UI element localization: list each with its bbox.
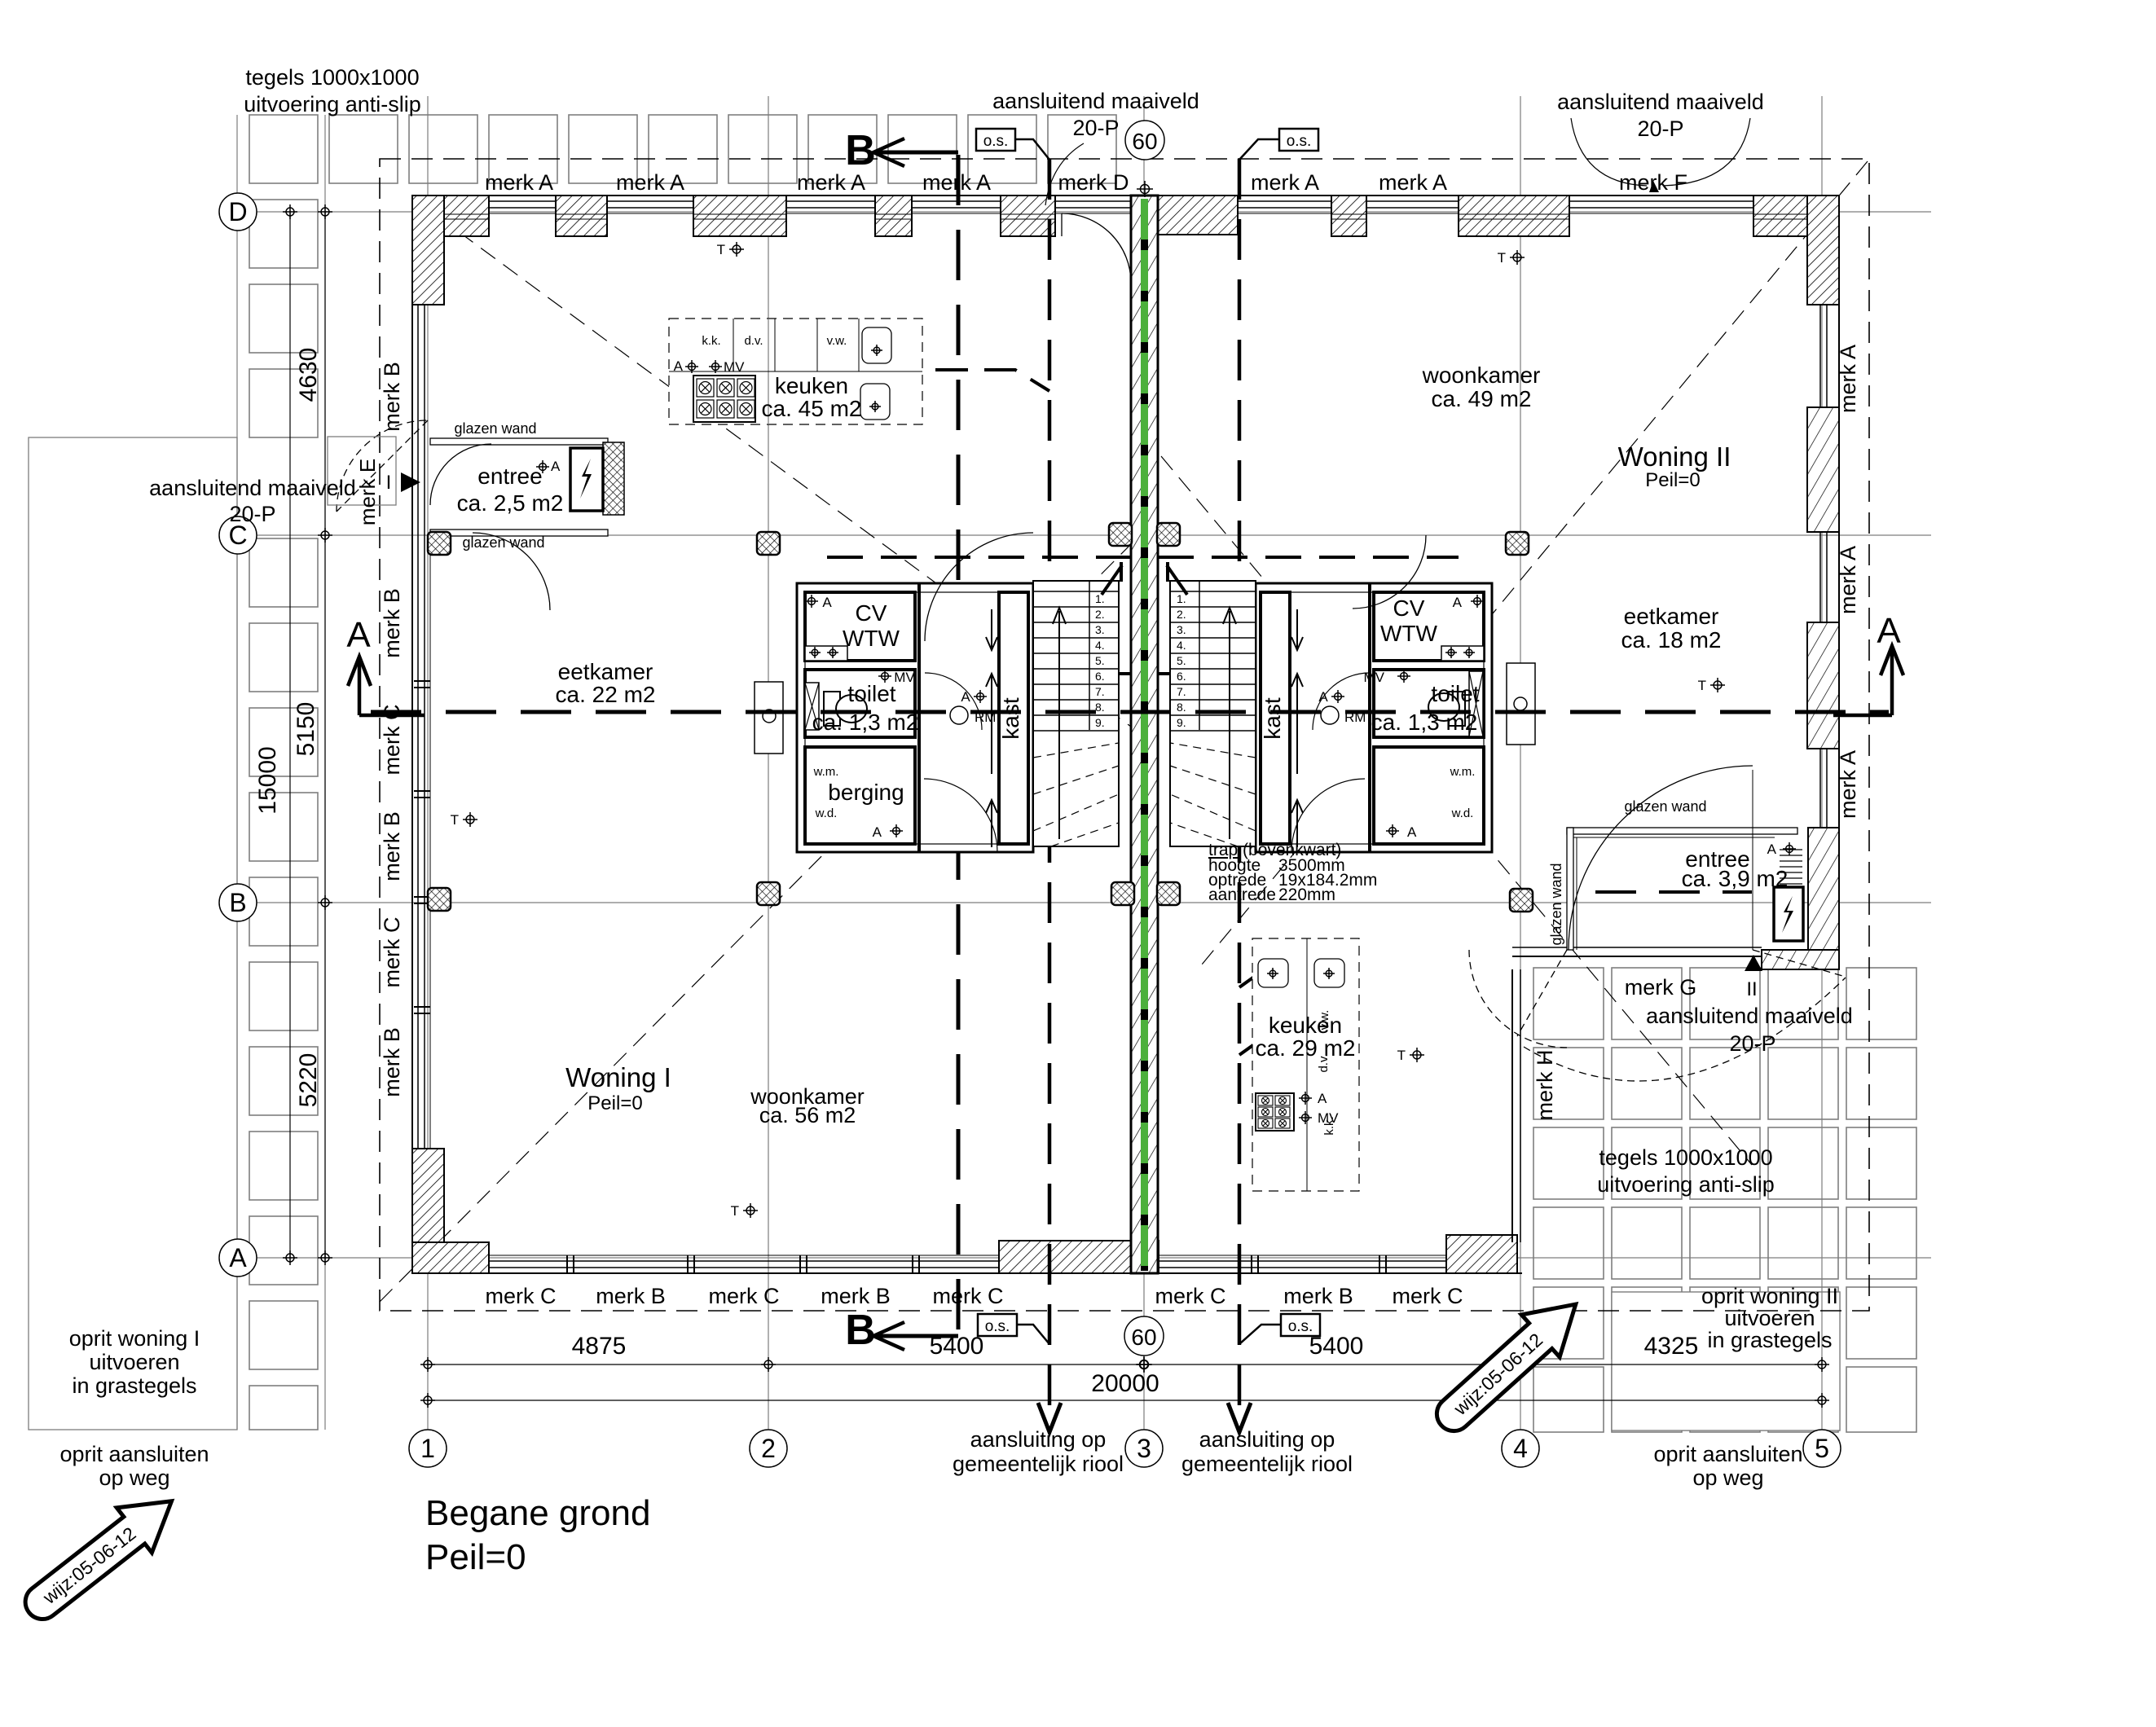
svg-text:k.k.: k.k. (702, 334, 720, 348)
svg-text:uitvoering anti-slip: uitvoering anti-slip (1597, 1172, 1775, 1197)
svg-text:merk B: merk B (380, 588, 404, 658)
svg-text:merk B: merk B (596, 1284, 666, 1308)
svg-text:glazen wand: glazen wand (454, 420, 536, 437)
svg-text:15000: 15000 (254, 746, 281, 814)
svg-text:aansluiting op: aansluiting op (1199, 1427, 1335, 1452)
svg-text:A: A (873, 824, 882, 840)
svg-text:merk C: merk C (380, 917, 404, 988)
svg-text:A: A (1877, 611, 1901, 651)
svg-text:4: 4 (1513, 1434, 1528, 1463)
svg-text:v.w.: v.w. (827, 334, 847, 348)
svg-text:A: A (1767, 842, 1777, 857)
svg-text:oprit aansluiten: oprit aansluiten (59, 1442, 209, 1466)
svg-text:4630: 4630 (295, 348, 322, 402)
svg-text:7.: 7. (1095, 685, 1105, 698)
svg-text:2.: 2. (1177, 608, 1186, 621)
svg-text:Peil=0: Peil=0 (1645, 469, 1700, 491)
svg-text:w.d.: w.d. (815, 806, 838, 820)
svg-text:MV: MV (894, 670, 915, 685)
svg-text:A: A (1318, 1091, 1327, 1106)
svg-text:T: T (1498, 250, 1506, 266)
svg-text:5220: 5220 (295, 1053, 322, 1108)
svg-text:gemeentelijk riool: gemeentelijk riool (1181, 1452, 1353, 1476)
svg-text:op weg: op weg (99, 1466, 169, 1490)
svg-text:MV: MV (1364, 670, 1385, 685)
svg-text:20-P: 20-P (1637, 116, 1683, 141)
svg-text:T: T (717, 242, 725, 257)
svg-text:220mm: 220mm (1278, 885, 1335, 904)
svg-text:1: 1 (420, 1434, 435, 1463)
svg-text:merk A: merk A (1836, 345, 1860, 413)
svg-text:merk B: merk B (1283, 1284, 1353, 1308)
svg-text:A: A (674, 358, 684, 374)
svg-text:B: B (845, 127, 876, 174)
svg-text:A: A (551, 459, 561, 474)
svg-text:merk B: merk B (380, 362, 404, 432)
svg-text:3.: 3. (1177, 623, 1186, 636)
svg-text:7.: 7. (1177, 685, 1186, 698)
svg-text:aansluitend maaiveld: aansluitend maaiveld (149, 476, 356, 500)
svg-text:A: A (229, 1243, 247, 1272)
svg-text:20-P: 20-P (1729, 1031, 1775, 1056)
svg-text:5150: 5150 (293, 702, 319, 757)
svg-text:merk B: merk B (821, 1284, 891, 1308)
svg-text:CV: CV (1393, 595, 1425, 621)
svg-text:d.v.: d.v. (744, 334, 763, 348)
svg-text:merk A: merk A (1379, 170, 1447, 195)
svg-text:op weg: op weg (1692, 1466, 1763, 1490)
svg-text:MV: MV (724, 359, 745, 375)
svg-text:merk H: merk H (1533, 1050, 1557, 1121)
svg-text:aansluitend maaiveld: aansluitend maaiveld (1646, 1004, 1853, 1028)
svg-text:keuken: keuken (1269, 1013, 1342, 1038)
svg-text:merk A: merk A (797, 170, 865, 195)
svg-text:4875: 4875 (572, 1333, 627, 1360)
svg-text:glazen wand: glazen wand (1548, 863, 1564, 945)
svg-text:ca. 45 m2: ca. 45 m2 (762, 396, 862, 421)
svg-text:ca. 29 m2: ca. 29 m2 (1256, 1035, 1356, 1061)
svg-text:A: A (1453, 595, 1463, 610)
svg-text:A: A (346, 615, 371, 655)
svg-text:8.: 8. (1095, 701, 1105, 714)
svg-text:aantrede: aantrede (1208, 885, 1276, 904)
svg-text:5400: 5400 (930, 1333, 984, 1360)
svg-text:merk C: merk C (1393, 1284, 1463, 1308)
svg-text:merk G: merk G (1625, 975, 1697, 1000)
svg-text:ca. 56 m2: ca. 56 m2 (759, 1103, 856, 1127)
svg-text:keuken: keuken (775, 373, 848, 398)
svg-text:in grastegels: in grastegels (72, 1373, 196, 1398)
svg-text:uitvoering anti-slip: uitvoering anti-slip (244, 92, 421, 116)
svg-text:A: A (961, 689, 970, 705)
svg-text:ca. 49 m2: ca. 49 m2 (1432, 386, 1532, 411)
svg-text:T: T (731, 1203, 739, 1219)
svg-text:merk B: merk B (380, 1027, 404, 1097)
svg-text:9.: 9. (1177, 716, 1186, 729)
svg-text:merk E: merk E (355, 459, 380, 525)
svg-text:ca. 3,9 m2: ca. 3,9 m2 (1682, 866, 1789, 891)
svg-text:aansluiting op: aansluiting op (970, 1427, 1107, 1452)
svg-text:merk A: merk A (485, 170, 553, 195)
svg-text:kast: kast (1260, 697, 1285, 740)
svg-text:entree: entree (477, 464, 542, 489)
svg-text:Peil=0: Peil=0 (425, 1537, 526, 1577)
svg-text:Woning I: Woning I (565, 1062, 671, 1092)
svg-text:WTW: WTW (1380, 621, 1438, 646)
svg-text:kast: kast (998, 697, 1023, 740)
svg-text:20-P: 20-P (229, 502, 275, 526)
svg-text:3: 3 (1137, 1434, 1151, 1463)
svg-text:ca. 22 m2: ca. 22 m2 (556, 682, 656, 707)
svg-text:merk C: merk C (709, 1284, 780, 1308)
svg-text:8.: 8. (1177, 701, 1186, 714)
svg-text:in grastegels: in grastegels (1707, 1328, 1832, 1352)
svg-text:merk B: merk B (380, 811, 404, 881)
svg-text:uitvoeren: uitvoeren (1724, 1306, 1815, 1330)
svg-text:merk C: merk C (486, 1284, 557, 1308)
svg-text:gemeentelijk riool: gemeentelijk riool (953, 1452, 1124, 1476)
svg-text:3.: 3. (1095, 623, 1105, 636)
svg-text:5: 5 (1815, 1434, 1829, 1463)
svg-text:oprit woning I: oprit woning I (69, 1326, 200, 1351)
svg-text:w.m.: w.m. (1450, 765, 1476, 779)
svg-text:T: T (1397, 1048, 1406, 1063)
svg-text:A: A (822, 595, 832, 610)
svg-text:uitvoeren: uitvoeren (89, 1350, 179, 1374)
svg-text:ca. 2,5 m2: ca. 2,5 m2 (457, 490, 564, 516)
svg-text:2.: 2. (1095, 608, 1105, 621)
svg-text:eetkamer: eetkamer (1624, 604, 1719, 629)
svg-text:20000: 20000 (1091, 1370, 1159, 1397)
svg-text:II: II (1746, 978, 1757, 1000)
svg-text:5400: 5400 (1309, 1333, 1364, 1360)
svg-text:merk C: merk C (380, 705, 404, 776)
svg-text:merk D: merk D (1058, 170, 1129, 195)
svg-text:Peil=0: Peil=0 (587, 1092, 642, 1114)
svg-text:woonkamer: woonkamer (1422, 363, 1541, 388)
svg-text:D: D (228, 197, 247, 226)
svg-text:merk A: merk A (616, 170, 684, 195)
svg-text:5.: 5. (1177, 654, 1186, 667)
svg-text:glazen wand: glazen wand (462, 534, 544, 551)
svg-text:w.d.: w.d. (1451, 806, 1474, 820)
svg-text:T: T (451, 812, 459, 828)
svg-text:w.m.: w.m. (813, 765, 839, 779)
svg-text:eetkamer: eetkamer (558, 659, 653, 684)
svg-text:tegels 1000x1000: tegels 1000x1000 (245, 65, 419, 90)
svg-text:toilet: toilet (1431, 681, 1479, 706)
svg-text:toilet: toilet (847, 681, 895, 706)
svg-text:9.: 9. (1095, 716, 1105, 729)
svg-text:tegels 1000x1000: tegels 1000x1000 (1599, 1145, 1772, 1170)
svg-text:merk A: merk A (1836, 546, 1860, 614)
svg-text:o.s.: o.s. (983, 133, 1009, 150)
svg-text:merk A: merk A (1251, 170, 1319, 195)
svg-text:1.: 1. (1177, 592, 1186, 605)
svg-text:B: B (229, 888, 246, 917)
svg-text:4325: 4325 (1644, 1333, 1699, 1360)
svg-text:2: 2 (761, 1434, 776, 1463)
svg-text:merk A: merk A (922, 170, 991, 195)
svg-text:B: B (845, 1307, 876, 1354)
svg-text:60: 60 (1132, 129, 1157, 154)
svg-text:merk A: merk A (1836, 750, 1860, 819)
svg-text:MV: MV (1318, 1110, 1339, 1126)
svg-text:6.: 6. (1177, 670, 1186, 683)
svg-text:T: T (1698, 678, 1706, 693)
svg-text:Begane grond: Begane grond (425, 1493, 650, 1533)
svg-text:merk C: merk C (1155, 1284, 1226, 1308)
svg-text:CV: CV (856, 600, 887, 626)
svg-text:oprit aansluiten: oprit aansluiten (1653, 1442, 1802, 1466)
svg-text:merk C: merk C (933, 1284, 1004, 1308)
svg-text:20-P: 20-P (1072, 116, 1119, 140)
svg-text:60: 60 (1131, 1325, 1156, 1350)
svg-text:aansluitend maaiveld: aansluitend maaiveld (992, 89, 1199, 113)
svg-text:4.: 4. (1177, 639, 1186, 652)
svg-text:5.: 5. (1095, 654, 1105, 667)
svg-text:o.s.: o.s. (1287, 133, 1312, 150)
svg-text:berging: berging (828, 780, 904, 805)
svg-text:ca. 18 m2: ca. 18 m2 (1621, 627, 1722, 653)
svg-text:aansluitend maaiveld: aansluitend maaiveld (1557, 90, 1764, 114)
svg-text:Woning II: Woning II (1618, 442, 1731, 472)
svg-text:o.s.: o.s. (985, 1318, 1010, 1335)
svg-text:oprit woning II: oprit woning II (1701, 1284, 1838, 1308)
svg-text:I: I (386, 472, 392, 494)
svg-text:6.: 6. (1095, 670, 1105, 683)
svg-text:A: A (1407, 824, 1417, 840)
svg-text:WTW: WTW (843, 626, 900, 651)
svg-text:4.: 4. (1095, 639, 1105, 652)
